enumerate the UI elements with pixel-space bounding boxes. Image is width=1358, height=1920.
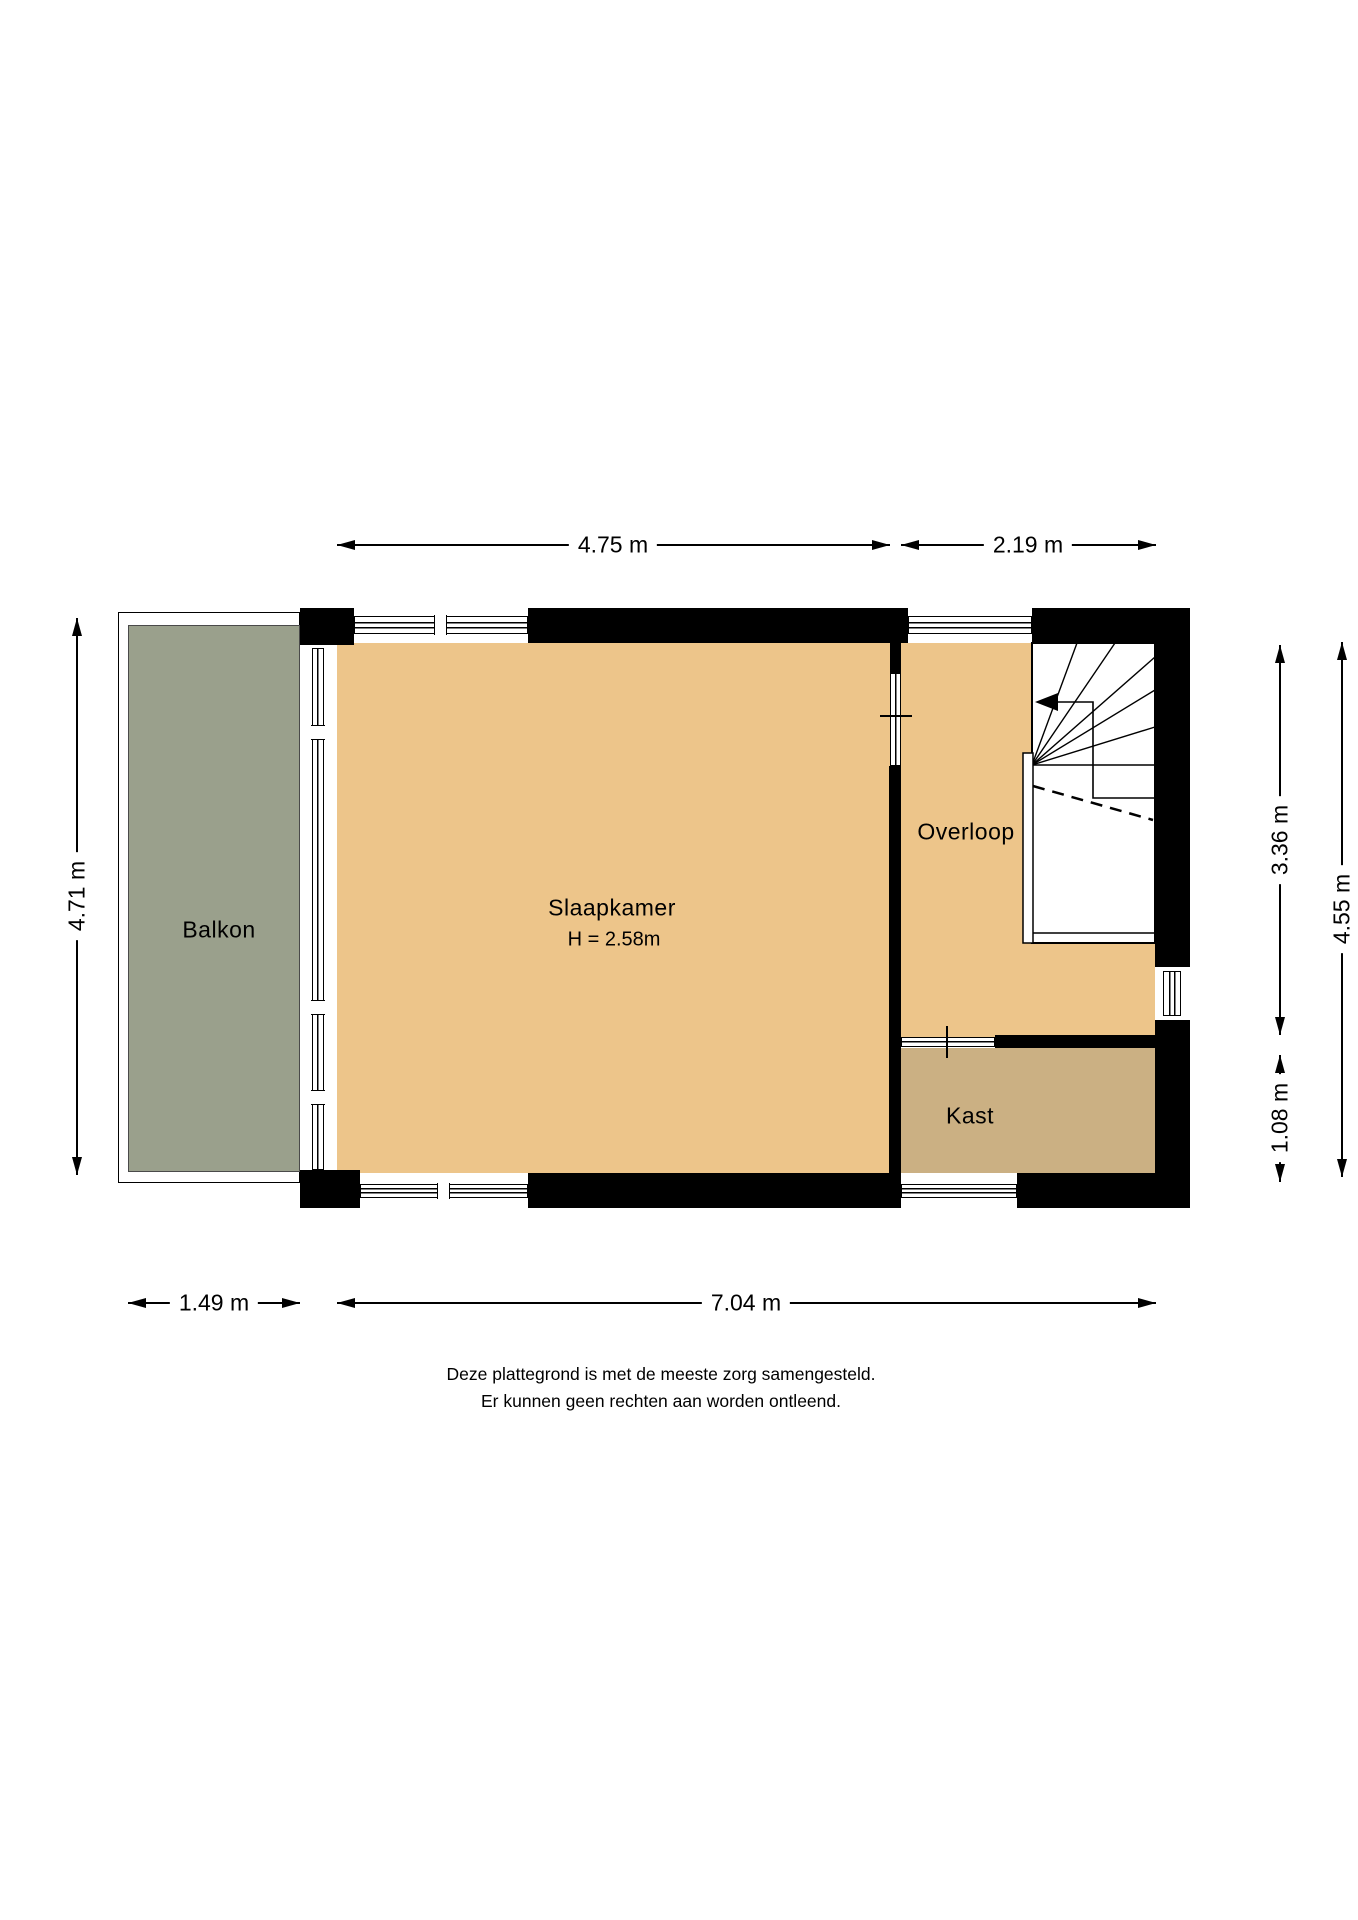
dim-label-landing-width: 2.19 m	[984, 532, 1072, 559]
stair-balustrade	[1023, 753, 1033, 943]
arrowhead-right-icon	[282, 1298, 300, 1308]
dim-label-building-width: 7.04 m	[702, 1290, 790, 1317]
dim-label-bedroom-width: 4.75 m	[569, 532, 657, 559]
room-label-balcony: Balkon	[182, 917, 255, 944]
arrowhead-down-icon	[1275, 1017, 1285, 1035]
arrowhead-right-icon	[1138, 1298, 1156, 1308]
dim-label-closet-depth: 1.08 m	[1267, 1074, 1294, 1162]
dim-label-right-total-depth: 4.55 m	[1329, 865, 1356, 953]
arrowhead-right-icon	[872, 540, 890, 550]
arrowhead-down-icon	[1275, 1164, 1285, 1182]
arrowhead-right-icon	[1138, 540, 1156, 550]
arrowhead-down-icon	[1337, 1159, 1347, 1177]
arrowhead-up-icon	[1275, 1055, 1285, 1073]
floor-plan: Balkon Slaapkamer H = 2.58m Overloop Kas…	[0, 0, 1358, 1920]
disclaimer: Deze plattegrond is met de meeste zorg s…	[447, 1361, 876, 1415]
arrowhead-left-icon	[128, 1298, 146, 1308]
stairs	[0, 0, 1358, 1920]
arrowhead-left-icon	[337, 540, 355, 550]
disclaimer-line-2: Er kunnen geen rechten aan worden ontlee…	[447, 1388, 876, 1415]
arrowhead-down-icon	[72, 1157, 82, 1175]
dim-label-balcony-height: 4.71 m	[64, 852, 91, 940]
room-label-bedroom: Slaapkamer	[548, 895, 676, 922]
arrowhead-up-icon	[1337, 642, 1347, 660]
room-label-landing: Overloop	[917, 819, 1014, 846]
disclaimer-line-1: Deze plattegrond is met de meeste zorg s…	[447, 1361, 876, 1388]
arrowhead-left-icon	[901, 540, 919, 550]
arrowhead-left-icon	[337, 1298, 355, 1308]
bedroom-ceiling-height: H = 2.58m	[568, 929, 661, 952]
dim-label-balcony-width: 1.49 m	[170, 1290, 258, 1317]
arrowhead-up-icon	[72, 618, 82, 636]
room-label-closet: Kast	[946, 1103, 994, 1130]
arrowhead-up-icon	[1275, 645, 1285, 663]
dim-label-landing-depth: 3.36 m	[1267, 796, 1294, 884]
